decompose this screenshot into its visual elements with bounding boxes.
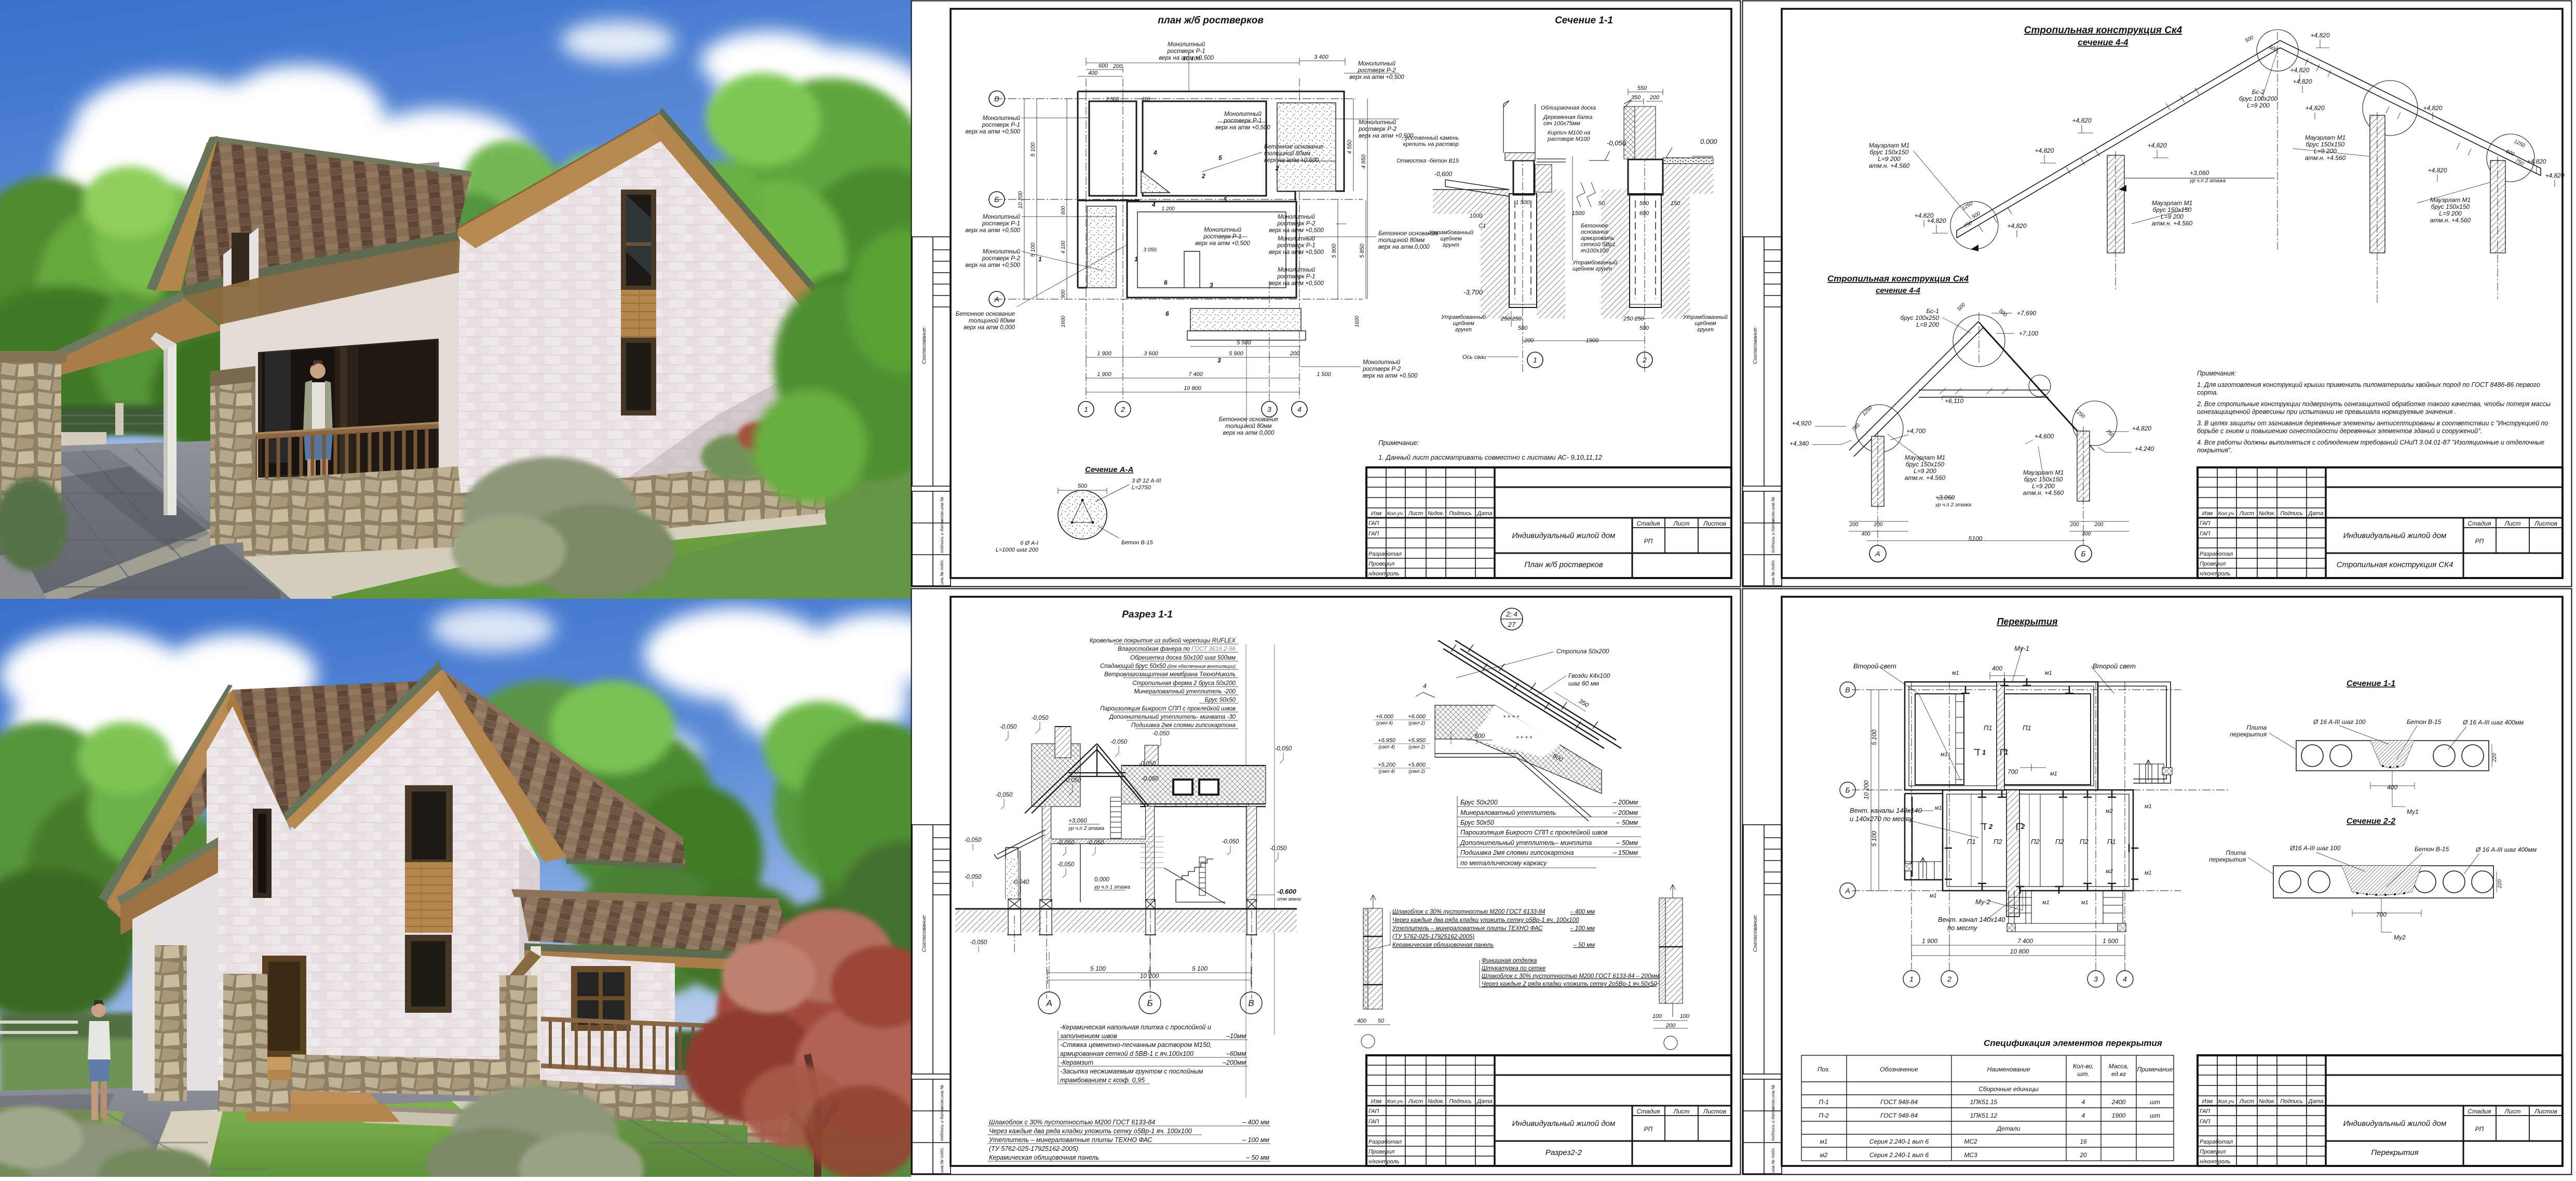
svg-text:400: 400 bbox=[1088, 70, 1098, 76]
svg-text:4: 4 bbox=[1153, 149, 1157, 156]
svg-text:+7,100: +7,100 bbox=[2019, 330, 2038, 337]
svg-text:+6.000: +6.000 bbox=[1376, 714, 1394, 720]
svg-text:400: 400 bbox=[2082, 531, 2091, 537]
svg-text:Бетон В-15: Бетон В-15 bbox=[1121, 540, 1154, 546]
svg-text:+5.950: +5.950 bbox=[1408, 737, 1426, 744]
svg-text:3 050: 3 050 bbox=[1143, 247, 1156, 253]
svg-text:П-2: П-2 bbox=[1819, 1112, 1829, 1119]
svg-text:Спецификация элементов перекры: Спецификация элементов перекрытия bbox=[1984, 1038, 2162, 1048]
svg-text:3. В целях защиты от загнивани: 3. В целях защиты от загнивания деревянн… bbox=[2197, 420, 2548, 427]
svg-text:+4,600: +4,600 bbox=[2035, 433, 2054, 440]
svg-text:план ж/б ростверков: план ж/б ростверков bbox=[1158, 15, 1264, 26]
svg-text:4 550: 4 550 bbox=[1347, 139, 1353, 154]
svg-text:Масса,: Масса, bbox=[2109, 1063, 2129, 1070]
svg-text:-Керамзит: -Керамзит bbox=[1060, 1059, 1093, 1066]
svg-text:Подшивка 2мя слоями гипсокарто: Подшивка 2мя слоями гипсокартона bbox=[1131, 722, 1236, 729]
svg-text:1: 1 bbox=[2004, 748, 2008, 756]
svg-text:-0,050: -0,050 bbox=[1110, 739, 1128, 745]
svg-text:П2: П2 bbox=[2080, 838, 2089, 846]
svg-text:Плита: Плита bbox=[2246, 724, 2267, 731]
svg-text:-0,040: -0,040 bbox=[1012, 879, 1029, 885]
svg-text:Минераловатный утеплитель: Минераловатный утеплитель -200 bbox=[1134, 689, 1236, 695]
svg-text:27: 27 bbox=[1508, 621, 1516, 628]
svg-text:600: 600 bbox=[1099, 63, 1108, 69]
svg-text:перекрытия: перекрытия bbox=[2209, 856, 2246, 863]
svg-text:–60мм: –60мм bbox=[1226, 1050, 1246, 1057]
svg-text:Стропильная конструкция СК4: Стропильная конструкция СК4 bbox=[2337, 560, 2453, 569]
svg-text:отм земли: отм земли bbox=[1277, 896, 1301, 902]
svg-text:и 140х270 по месту: и 140х270 по месту bbox=[1850, 815, 1914, 823]
svg-text:Му2: Му2 bbox=[2394, 934, 2406, 941]
svg-text:м1: м1 bbox=[2081, 900, 2089, 906]
svg-text:ур ч.п 2 этажа: ур ч.п 2 этажа bbox=[2189, 178, 2226, 184]
svg-text:Дополнительный утеплитель– мин: Дополнительный утеплитель– минплита bbox=[1459, 839, 1592, 847]
svg-text:+4,820: +4,820 bbox=[2132, 425, 2151, 432]
svg-text:–200мм: –200мм bbox=[1222, 1059, 1246, 1066]
svg-text:7 400: 7 400 bbox=[2017, 937, 2033, 945]
svg-text:Сечение 2-2: Сечение 2-2 bbox=[2347, 817, 2395, 826]
svg-text:Отмостка -бетон В15: Отмостка -бетон В15 bbox=[1397, 158, 1459, 164]
svg-text:600: 600 bbox=[1061, 206, 1066, 214]
svg-text:м1: м1 bbox=[2145, 803, 2152, 810]
svg-text:L=9 200: L=9 200 bbox=[1916, 321, 1939, 328]
svg-text:100: 100 bbox=[1652, 1013, 1662, 1019]
svg-text:-0,050: -0,050 bbox=[965, 837, 982, 843]
svg-text:борьбе с гнием и повышению огн: борьбе с гнием и повышению огнестойкости… bbox=[2197, 427, 2482, 435]
svg-text:шт: шт bbox=[2150, 1098, 2160, 1106]
svg-text:по металлическому каркасу: по металлическому каркасу bbox=[1460, 860, 1547, 867]
svg-text:Финишная отделка: Финишная отделка bbox=[1482, 958, 1537, 964]
svg-text:+4,820: +4,820 bbox=[2035, 147, 2054, 154]
svg-text:1 500: 1 500 bbox=[1317, 371, 1331, 378]
svg-text:– 400 мм: – 400 мм bbox=[1242, 1119, 1269, 1126]
svg-text:+4,820: +4,820 bbox=[2147, 142, 2166, 149]
svg-text:Керамическая облицовочная пане: Керамическая облицовочная панель bbox=[989, 1154, 1099, 1161]
svg-text:ГОСТ 948-84: ГОСТ 948-84 bbox=[1880, 1112, 1918, 1119]
svg-text:Деревянная балка: Деревянная балка bbox=[1542, 114, 1592, 120]
svg-text:Поз.: Поз. bbox=[1818, 1066, 1830, 1073]
svg-text:МС3: МС3 bbox=[1964, 1151, 1977, 1159]
svg-text:250 250: 250 250 bbox=[1623, 316, 1645, 322]
svg-text:2: 2 bbox=[2021, 823, 2025, 830]
svg-text:4 950: 4 950 bbox=[1361, 154, 1367, 168]
svg-text:В: В bbox=[994, 95, 999, 103]
svg-text:–10мм: –10мм bbox=[1226, 1032, 1246, 1040]
svg-text:П1: П1 bbox=[1984, 724, 1992, 732]
svg-text:А: А bbox=[1046, 998, 1052, 1008]
svg-text:Плита: Плита bbox=[2226, 849, 2246, 856]
svg-text:Утеплитель – минераловатные пл: Утеплитель – минераловатные плиты ТЕХНО … bbox=[988, 1136, 1153, 1144]
svg-text:ГОСТ 948-84: ГОСТ 948-84 bbox=[1880, 1098, 1918, 1106]
svg-text:1ПК51.15: 1ПК51.15 bbox=[1970, 1098, 1998, 1106]
svg-text:1 500: 1 500 bbox=[2103, 937, 2118, 945]
svg-text:-Стяжка цементно-песчанным рас: -Стяжка цементно-песчанным раствором М15… bbox=[1060, 1041, 1212, 1049]
svg-text:– 200мм: – 200мм bbox=[1612, 809, 1638, 816]
svg-text:5: 5 bbox=[1218, 154, 1222, 162]
svg-text:1ПК51.12: 1ПК51.12 bbox=[1970, 1112, 1998, 1119]
svg-text:10 200: 10 200 bbox=[1140, 972, 1159, 979]
svg-text:армированная сеткой d 5ВВ-1 с: армированная сеткой d 5ВВ-1 с яч.100х100 bbox=[1060, 1050, 1194, 1057]
svg-text:+4,820: +4,820 bbox=[2305, 104, 2324, 112]
svg-text:П1: П1 bbox=[2023, 724, 2031, 732]
svg-text:шт.: шт. bbox=[2077, 1070, 2089, 1078]
svg-text:Керамическая облицовочная пане: Керамическая облицовочная панель bbox=[1392, 942, 1494, 948]
svg-text:трамбованием с коэф. 0,95: трамбованием с коэф. 0,95 bbox=[1060, 1077, 1145, 1084]
svg-text:+6.000: +6.000 bbox=[1408, 714, 1426, 720]
svg-text:Му-2: Му-2 bbox=[1975, 898, 1991, 906]
svg-text:-0,050: -0,050 bbox=[1000, 724, 1017, 730]
svg-text:м1: м1 bbox=[1820, 1138, 1828, 1145]
svg-text:Мауэрлат М1брус 150х150L=9 200: Мауэрлат М1брус 150х150L=9 200атм.н. +4.… bbox=[2152, 199, 2193, 227]
svg-text:растворе М100: растворе М100 bbox=[1547, 136, 1590, 142]
svg-text:+ + + +: + + + + bbox=[1503, 714, 1520, 720]
svg-text:2400: 2400 bbox=[2111, 1098, 2126, 1106]
svg-text:4: 4 bbox=[1297, 405, 1301, 413]
svg-text:П1: П1 bbox=[2107, 838, 2116, 846]
svg-text:– 50 мм: – 50 мм bbox=[1573, 942, 1595, 948]
svg-text:-0,050: -0,050 bbox=[1064, 777, 1081, 784]
svg-text:м1: м1 bbox=[1941, 751, 1948, 758]
svg-text:-Керамическая напольная плитка: -Керамическая напольная плитка с прослой… bbox=[1060, 1024, 1211, 1031]
svg-text:+4,920: +4,920 bbox=[1792, 420, 1811, 427]
svg-text:1 900: 1 900 bbox=[1097, 371, 1111, 378]
svg-text:-0,050: -0,050 bbox=[965, 874, 982, 880]
svg-text:5 100: 5 100 bbox=[1090, 965, 1106, 972]
svg-text:..усственный камень: ..усственный камень bbox=[1402, 135, 1459, 141]
svg-text:(узел 2): (узел 2) bbox=[1408, 769, 1425, 774]
svg-text:-0,050: -0,050 bbox=[1142, 776, 1159, 782]
svg-text:3 400: 3 400 bbox=[1314, 54, 1328, 60]
svg-text:2: 2 bbox=[1947, 975, 1951, 983]
svg-text:20: 20 bbox=[2079, 1151, 2087, 1159]
svg-text:6: 6 bbox=[1164, 279, 1168, 286]
svg-text:+4,820: +4,820 bbox=[2527, 158, 2546, 165]
svg-text:Примечание:: Примечание: bbox=[1378, 439, 1419, 447]
svg-text:-0,050: -0,050 bbox=[1222, 839, 1239, 845]
svg-text:200: 200 bbox=[1649, 95, 1660, 101]
svg-text:Через каждые два ряда кладки у: Через каждые два ряда кладки уложить сет… bbox=[1392, 917, 1579, 923]
svg-text:ур ч.п 2 этажа: ур ч.п 2 этажа bbox=[1935, 502, 1971, 508]
svg-text:700: 700 bbox=[2008, 768, 2018, 775]
svg-text:0,000: 0,000 bbox=[1094, 877, 1109, 883]
svg-text:4 100: 4 100 bbox=[1061, 240, 1066, 253]
svg-text:Ветровлагозащитная мембрана Те: Ветровлагозащитная мембрана ТехноНиколь bbox=[1104, 672, 1236, 678]
svg-text:1 500: 1 500 bbox=[1515, 199, 1530, 206]
svg-text:+5.200: +5.200 bbox=[1378, 762, 1396, 768]
svg-text:+6,110: +6,110 bbox=[1945, 397, 1963, 405]
svg-text:ур ч.п 2 этажа: ур ч.п 2 этажа bbox=[1068, 826, 1104, 831]
svg-text:Б: Б bbox=[1147, 998, 1153, 1008]
svg-text:4: 4 bbox=[2082, 1098, 2085, 1106]
svg-text:Брус 50x200: Брус 50x200 bbox=[1460, 799, 1498, 806]
svg-text:200: 200 bbox=[1849, 522, 1859, 528]
svg-text:+3,060: +3,060 bbox=[1068, 818, 1087, 824]
svg-text:МС2: МС2 bbox=[1964, 1138, 1977, 1145]
svg-text:3 600: 3 600 bbox=[1144, 351, 1158, 357]
svg-text:П2: П2 bbox=[2031, 838, 2040, 846]
svg-text:+5.950: +5.950 bbox=[1378, 737, 1396, 744]
svg-text:Через каждые два ряда кладки у: Через каждые два ряда кладки уложить сет… bbox=[989, 1128, 1192, 1135]
svg-text:10 200: 10 200 bbox=[1018, 191, 1024, 209]
svg-text:3: 3 bbox=[2094, 975, 2098, 983]
svg-text:м2: м2 bbox=[1820, 1151, 1828, 1159]
svg-text:Штукатурка по сетке: Штукатурка по сетке bbox=[1482, 965, 1545, 972]
svg-text:Серия 2.240-1 вып 6: Серия 2.240-1 вып 6 bbox=[1869, 1151, 1929, 1159]
svg-text:-0,050: -0,050 bbox=[1270, 846, 1287, 852]
svg-text:м1: м1 bbox=[2050, 771, 2057, 777]
svg-text:+4,340: +4,340 bbox=[1789, 440, 1809, 447]
svg-text:2: 2 bbox=[1275, 165, 1279, 172]
svg-text:Обрешетка доска 50х100 шаг 500: Обрешетка доска 50х100 шаг 500мм bbox=[1130, 655, 1236, 661]
svg-text:покрытия".: покрытия". bbox=[2197, 447, 2232, 454]
svg-text:6: 6 bbox=[1165, 310, 1169, 317]
svg-text:500: 500 bbox=[1078, 483, 1088, 489]
svg-text:сорта.: сорта. bbox=[2197, 389, 2218, 396]
svg-text:7 400: 7 400 bbox=[1188, 371, 1203, 378]
svg-text:Мауэрлат М1брус 150х150L=9 200: Мауэрлат М1брус 150х150L=9 200атм.н. +4.… bbox=[2305, 134, 2346, 162]
svg-text:150: 150 bbox=[1671, 200, 1680, 207]
svg-text:2; 4: 2; 4 bbox=[1506, 610, 1517, 618]
svg-text:А: А bbox=[994, 295, 999, 303]
svg-text:200: 200 bbox=[2070, 522, 2079, 528]
svg-text:по месту: по месту bbox=[1947, 924, 1978, 932]
svg-text:Сборочные единицы: Сборочные единицы bbox=[1978, 1085, 2039, 1093]
svg-text:+4,820: +4,820 bbox=[2423, 104, 2442, 112]
svg-text:ед.кг: ед.кг bbox=[2111, 1070, 2126, 1078]
svg-text:Второй свет: Второй свет bbox=[1853, 662, 1896, 670]
svg-text:0.000: 0.000 bbox=[1700, 138, 1717, 145]
svg-text:1: 1 bbox=[1134, 256, 1138, 263]
svg-text:2. Все стропильные конструкц: 2. Все стропильные конструкции подвергну… bbox=[2197, 400, 2551, 408]
svg-text:ур ч.п 1 этажа: ур ч.п 1 этажа bbox=[1094, 884, 1130, 890]
svg-text:Мауэрлат М1брус 150х150L=9 200: Мауэрлат М1брус 150х150L=9 200атм.н. +4.… bbox=[2023, 469, 2064, 496]
svg-text:(ТУ 5762-025-17925162-2005): (ТУ 5762-025-17925162-2005) bbox=[989, 1145, 1078, 1152]
svg-text:5 900: 5 900 bbox=[1331, 243, 1337, 258]
svg-text:Кирпич М100 на: Кирпич М100 на bbox=[1548, 130, 1590, 136]
svg-text:1. Данный лист рассматривать: 1. Данный лист рассматривать совместно с… bbox=[1378, 453, 1603, 461]
svg-text:3: 3 bbox=[1210, 281, 1213, 289]
svg-text:1: 1 bbox=[1038, 256, 1042, 263]
svg-text:перекрытия: перекрытия bbox=[2230, 731, 2267, 738]
svg-text:+4,240: +4,240 bbox=[2135, 445, 2154, 452]
svg-text:Бс-1: Бс-1 bbox=[1927, 307, 1939, 315]
svg-text:– 50 мм: – 50 мм bbox=[1245, 1154, 1269, 1161]
svg-text:1500: 1500 bbox=[1572, 210, 1585, 217]
svg-text:200: 200 bbox=[1113, 63, 1123, 70]
svg-text:Б: Б bbox=[1845, 786, 1850, 794]
svg-text:Мауэрлат М1брус 150х150L=9 200: Мауэрлат М1брус 150х150L=9 200атм.н. +4.… bbox=[2430, 196, 2471, 224]
svg-text:16: 16 bbox=[2080, 1138, 2087, 1145]
svg-text:Примечание: Примечание bbox=[2137, 1066, 2173, 1073]
svg-text:5 100: 5 100 bbox=[1192, 965, 1208, 972]
svg-text:Влагостойкая фанера по ГОСТ 36: Влагостойкая фанера по ГОСТ 3616.2-96 bbox=[1118, 646, 1236, 652]
svg-text:Стропильная конструкция Ск4: Стропильная конструкция Ск4 bbox=[2024, 25, 2182, 36]
svg-text:220: 220 bbox=[2497, 879, 2503, 889]
svg-text:П-1: П-1 bbox=[1819, 1098, 1828, 1106]
svg-text:(узел 4): (узел 4) bbox=[1378, 744, 1395, 749]
svg-text:220: 220 bbox=[2492, 753, 2498, 762]
svg-text:Пароизоляция Бикрост СПП с про: Пароизоляция Бикрост СПП с проклейкой шв… bbox=[1460, 829, 1608, 836]
svg-text:Бетон В-15: Бетон В-15 bbox=[2407, 718, 2441, 726]
svg-text:Брус 50x50: Брус 50x50 bbox=[1460, 819, 1494, 826]
svg-text:10 800: 10 800 bbox=[1184, 385, 1202, 392]
svg-text:м1: м1 bbox=[1930, 893, 1937, 899]
svg-text:заполнением швов: заполнением швов bbox=[1060, 1032, 1117, 1040]
svg-text:П2: П2 bbox=[1994, 838, 2002, 846]
svg-text:4: 4 bbox=[1423, 682, 1427, 690]
svg-text:Через каждые 2 ряда кладки уло: Через каждые 2 ряда кладки уложить сетку… bbox=[1482, 981, 1657, 987]
svg-text:Кровельное покрытие из гибкой: Кровельное покрытие из гибкой черепицы R… bbox=[1090, 638, 1236, 644]
svg-text:1600: 1600 bbox=[1061, 315, 1066, 327]
svg-text:-0,050: -0,050 bbox=[1275, 746, 1292, 752]
svg-text:400: 400 bbox=[1357, 1018, 1367, 1024]
svg-text:В: В bbox=[1248, 998, 1254, 1008]
svg-text:м2: м2 bbox=[2106, 868, 2113, 875]
svg-text:м2: м2 bbox=[2106, 808, 2113, 814]
svg-text:2: 2 bbox=[1642, 356, 1647, 364]
svg-text:Шлакоблок с 30% пустотностью М: Шлакоблок с 30% пустотностью М200 ГОСТ 6… bbox=[1392, 909, 1545, 915]
svg-text:План ж/б ростверков: План ж/б ростверков bbox=[1524, 560, 1603, 569]
svg-text:2 500: 2 500 bbox=[1105, 97, 1119, 102]
svg-text:С1: С1 bbox=[1479, 223, 1486, 229]
svg-text:-0,050: -0,050 bbox=[1032, 715, 1049, 721]
svg-text:м1: м1 bbox=[1935, 805, 1942, 811]
svg-text:Второй свет: Второй свет bbox=[2093, 662, 2136, 670]
svg-text:Наименование: Наименование bbox=[1987, 1066, 2030, 1073]
svg-text:Утрамбованныйщебнем грунт: Утрамбованныйщебнем грунт bbox=[1572, 260, 1617, 272]
svg-text:м1: м1 bbox=[2045, 670, 2052, 676]
svg-text:– 150мм: – 150мм bbox=[1612, 849, 1638, 856]
svg-text:м1: м1 bbox=[1952, 670, 1959, 676]
svg-text:м1: м1 bbox=[2145, 870, 2152, 876]
svg-text:Б: Б bbox=[2081, 549, 2085, 558]
svg-text:550: 550 bbox=[1637, 85, 1647, 91]
svg-text:Разрез2-2: Разрез2-2 bbox=[1545, 1148, 1582, 1157]
svg-text:3 Ø 12 А-III: 3 Ø 12 А-III bbox=[1132, 478, 1161, 484]
svg-text:+4,820: +4,820 bbox=[2072, 117, 2091, 124]
svg-text:В: В bbox=[1845, 686, 1850, 694]
svg-text:Му1: Му1 bbox=[2407, 808, 2419, 815]
svg-text:400: 400 bbox=[1862, 531, 1870, 537]
svg-text:А: А bbox=[1875, 549, 1880, 558]
svg-text:– 200мм: – 200мм bbox=[1612, 799, 1638, 806]
svg-text:+4,820: +4,820 bbox=[2310, 32, 2329, 39]
svg-text:5: 5 bbox=[1224, 196, 1227, 203]
svg-text:Мауэрлат М1брус 150х150L=9 200: Мауэрлат М1брус 150х150L=9 200атм.н. +4.… bbox=[1869, 142, 1910, 169]
svg-text:L=2750: L=2750 bbox=[1132, 485, 1151, 491]
svg-text:10 800: 10 800 bbox=[2010, 948, 2029, 955]
svg-text:Гвозди К4х100: Гвозди К4х100 bbox=[1568, 672, 1610, 679]
svg-text:Ø 16 А-III шаг 400мм: Ø 16 А-III шаг 400мм bbox=[2475, 846, 2537, 853]
svg-text:Кол-во,: Кол-во, bbox=[2073, 1063, 2094, 1070]
svg-text:Бетонное основаниетолщиной 80м: Бетонное основаниетолщиной 80ммверх на а… bbox=[1219, 417, 1278, 436]
svg-text:(ТУ 5762-025-17925162-2005): (ТУ 5762-025-17925162-2005) bbox=[1392, 934, 1474, 940]
svg-text:5 850: 5 850 bbox=[1359, 243, 1365, 258]
svg-text:сечение 4-4: сечение 4-4 bbox=[2078, 37, 2128, 47]
svg-text:+4,700: +4,700 bbox=[1906, 427, 1926, 435]
svg-text:Подшивка 2мя слоями гипсокарто: Подшивка 2мя слоями гипсокартона bbox=[1460, 849, 1574, 856]
svg-text:5 900: 5 900 bbox=[1229, 351, 1243, 357]
svg-text:огнезащищенной древесины при и: огнезащищенной древесины при испытании н… bbox=[2197, 408, 2457, 415]
svg-text:1600: 1600 bbox=[1354, 315, 1360, 327]
svg-text:шаг 60 мм: шаг 60 мм bbox=[1568, 680, 1599, 687]
svg-text:Утеплитель – минераловатные пл: Утеплитель – минераловатные плиты ТЕХНО … bbox=[1392, 925, 1543, 932]
svg-text:брус 100х250: брус 100х250 bbox=[1901, 314, 1940, 321]
svg-text:4. Все работы должны выполня: 4. Все работы должны выполняться с соблю… bbox=[2197, 439, 2544, 446]
svg-text:П2: П2 bbox=[2055, 838, 2064, 846]
svg-text:П1: П1 bbox=[1967, 838, 1976, 846]
svg-text:м1: м1 bbox=[2042, 900, 2050, 906]
svg-text:Примечания:: Примечания: bbox=[2197, 370, 2236, 377]
svg-text:6 Ø А-I: 6 Ø А-I bbox=[1020, 540, 1038, 546]
svg-text:Мауэрлат М1брус 150х150L=9 200: Мауэрлат М1брус 150х150L=9 200атм.н. +4.… bbox=[1905, 454, 1946, 481]
svg-text:– 50мм: – 50мм bbox=[1616, 819, 1638, 826]
svg-text:Брус 50х50: Брус 50х50 bbox=[1204, 697, 1236, 703]
svg-text:Пароизоляция Бикрост СПП с про: Пароизоляция Бикрост СПП с проклейкой шв… bbox=[1100, 706, 1236, 712]
svg-text:+4,820: +4,820 bbox=[1914, 212, 1933, 219]
svg-text:1 900: 1 900 bbox=[1922, 937, 1937, 945]
svg-text:Сечение А-А: Сечение А-А bbox=[1085, 465, 1133, 474]
svg-text:3: 3 bbox=[1217, 357, 1221, 364]
svg-text:-0,050: -0,050 bbox=[970, 940, 987, 946]
svg-text:600: 600 bbox=[1639, 210, 1649, 217]
svg-text:Детали: Детали bbox=[1996, 1125, 2021, 1132]
svg-text:+ + + +: + + + + bbox=[1516, 735, 1533, 741]
svg-text:+4,820: +4,820 bbox=[2293, 78, 2312, 85]
svg-text:400: 400 bbox=[1142, 97, 1150, 102]
svg-text:Дополнительный утеплитель- мин: Дополнительный утеплитель- минвата -30 bbox=[1108, 714, 1236, 720]
svg-text:L=1000 шаг 200: L=1000 шаг 200 bbox=[996, 547, 1039, 553]
svg-text:-Засыпка несжимаемым грунтом с: -Засыпка несжимаемым грунтом с послойным bbox=[1060, 1068, 1203, 1075]
svg-text:-0,050: -0,050 bbox=[1087, 840, 1104, 846]
svg-text:5 100: 5 100 bbox=[1870, 831, 1878, 847]
svg-text:500: 500 bbox=[1518, 325, 1528, 331]
svg-text:Ø16 А-III шаг 100: Ø16 А-III шаг 100 bbox=[2289, 844, 2341, 852]
svg-text:(узел 2): (узел 2) bbox=[1408, 720, 1425, 726]
svg-text:Вент. каналы 140х140: Вент. каналы 140х140 bbox=[1850, 807, 1922, 814]
svg-text:Стропильная конструкция Ск4: Стропильная конструкция Ск4 bbox=[1827, 274, 1969, 284]
svg-text:4: 4 bbox=[2123, 975, 2127, 983]
svg-text:2: 2 bbox=[1201, 172, 1205, 180]
svg-text:3: 3 bbox=[1267, 405, 1271, 413]
svg-text:50: 50 bbox=[1378, 1018, 1385, 1024]
svg-text:Шлакоблок с 30% пустотностью М: Шлакоблок с 30% пустотностью М200 ГОСТ 6… bbox=[1482, 973, 1659, 979]
svg-text:5 100: 5 100 bbox=[1870, 730, 1878, 745]
svg-text:500: 500 bbox=[1639, 325, 1649, 331]
svg-text:1. Для изготовления конструк: 1. Для изготовления конструкций крыши пр… bbox=[2197, 381, 2540, 388]
svg-text:– 50мм: – 50мм bbox=[1616, 839, 1638, 847]
svg-text:– 100 мм: – 100 мм bbox=[1569, 925, 1595, 932]
svg-text:1 200: 1 200 bbox=[1161, 206, 1174, 212]
svg-text:Перекрытия: Перекрытия bbox=[1997, 616, 2057, 627]
svg-text:350: 350 bbox=[1631, 95, 1641, 101]
svg-text:900: 900 bbox=[1061, 289, 1066, 298]
svg-text:-0,050: -0,050 bbox=[996, 792, 1013, 798]
svg-text:1: 1 bbox=[1533, 356, 1537, 364]
svg-text:сечение 4-4: сечение 4-4 bbox=[1876, 286, 1920, 295]
svg-text:Серия 2.240-1 вып 6: Серия 2.240-1 вып 6 bbox=[1869, 1138, 1929, 1145]
svg-text:5 100: 5 100 bbox=[1030, 142, 1036, 156]
svg-text:Сечение 1-1: Сечение 1-1 bbox=[2347, 679, 2395, 688]
svg-text:Ось сваи: Ось сваи bbox=[1462, 354, 1486, 360]
svg-text:+5.800: +5.800 bbox=[1408, 762, 1426, 768]
svg-text:1: 1 bbox=[1084, 405, 1088, 413]
svg-text:+7,690: +7,690 bbox=[2017, 310, 2036, 317]
svg-text:Ø 16 А-III шаг 400мм: Ø 16 А-III шаг 400мм bbox=[2462, 719, 2524, 726]
svg-text:5 500: 5 500 bbox=[1237, 340, 1251, 346]
svg-text:100: 100 bbox=[1680, 1013, 1690, 1019]
svg-text:1900: 1900 bbox=[2112, 1112, 2126, 1119]
